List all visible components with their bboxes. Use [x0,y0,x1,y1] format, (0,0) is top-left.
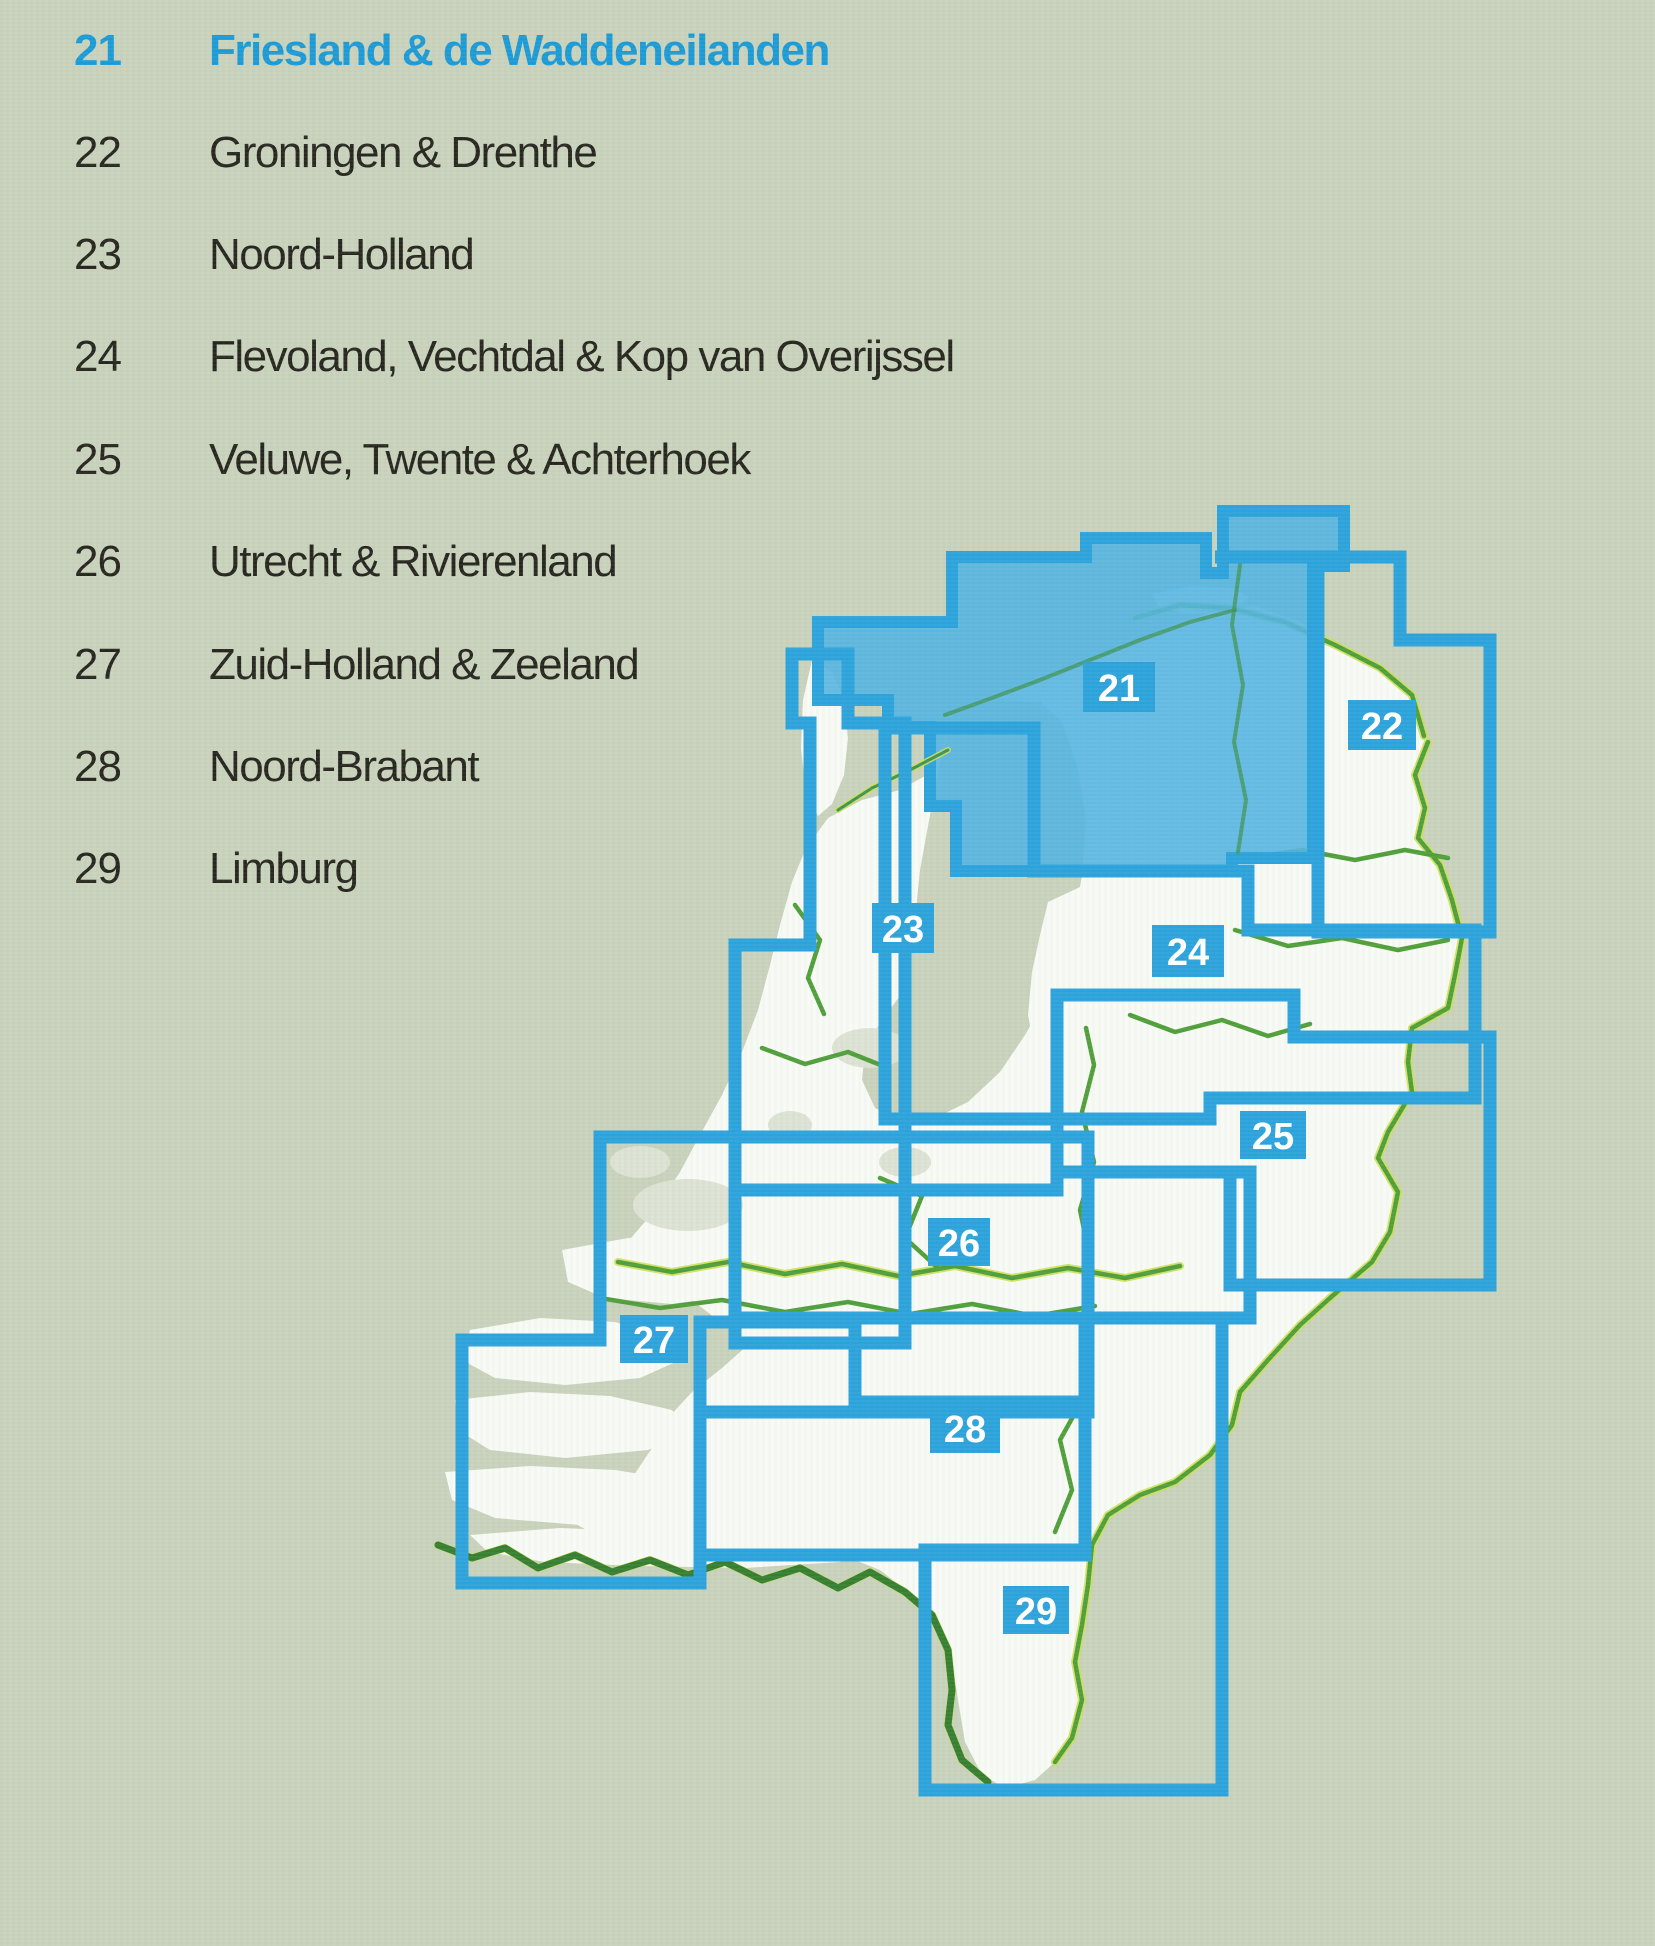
svg-text:21: 21 [1098,668,1140,710]
svg-text:27: 27 [633,1320,675,1362]
legend-number: 27 [74,640,121,690]
svg-text:23: 23 [882,909,924,951]
legend-number: 29 [74,844,121,894]
map-label-26: 26 [928,1218,990,1266]
atlas-index-page: 21 22 23 24 25 26 [0,0,1655,1946]
legend-region-name: Flevoland, Vechtdal & Kop van Overijssel [209,332,954,382]
legend-number: 25 [74,435,121,485]
map-label-23: 23 [872,903,934,953]
legend-number: 26 [74,537,121,587]
legend-region-name: Utrecht & Rivierenland [209,537,616,587]
legend-region-name: Groningen & Drenthe [209,128,596,178]
legend-number: 23 [74,230,121,280]
legend-region-name: Noord-Brabant [209,742,478,792]
svg-text:25: 25 [1252,1116,1294,1158]
legend-region-name: Veluwe, Twente & Achterhoek [209,435,750,485]
map-label-27: 27 [620,1315,688,1363]
map-label-29: 29 [1003,1586,1069,1634]
map-label-28: 28 [930,1403,1000,1453]
legend-region-name: Zuid-Holland & Zeeland [209,640,638,690]
map-label-24: 24 [1152,925,1224,977]
legend-region-name: Noord-Holland [209,230,473,280]
map-label-22: 22 [1348,700,1416,750]
map-label-25: 25 [1240,1111,1306,1159]
legend-region-name: Limburg [209,844,357,894]
svg-text:29: 29 [1015,1591,1057,1633]
legend-region-name: Friesland & de Waddeneilanden [209,26,829,76]
legend-number: 22 [74,128,121,178]
map-label-21: 21 [1083,662,1155,712]
netherlands-overview-map: 21 22 23 24 25 26 [0,0,1655,1946]
svg-text:24: 24 [1167,932,1209,974]
svg-text:22: 22 [1361,706,1403,748]
svg-text:28: 28 [944,1409,986,1451]
legend-number: 24 [74,332,121,382]
legend-number: 21 [74,26,121,76]
legend-number: 28 [74,742,121,792]
svg-text:26: 26 [938,1223,980,1265]
